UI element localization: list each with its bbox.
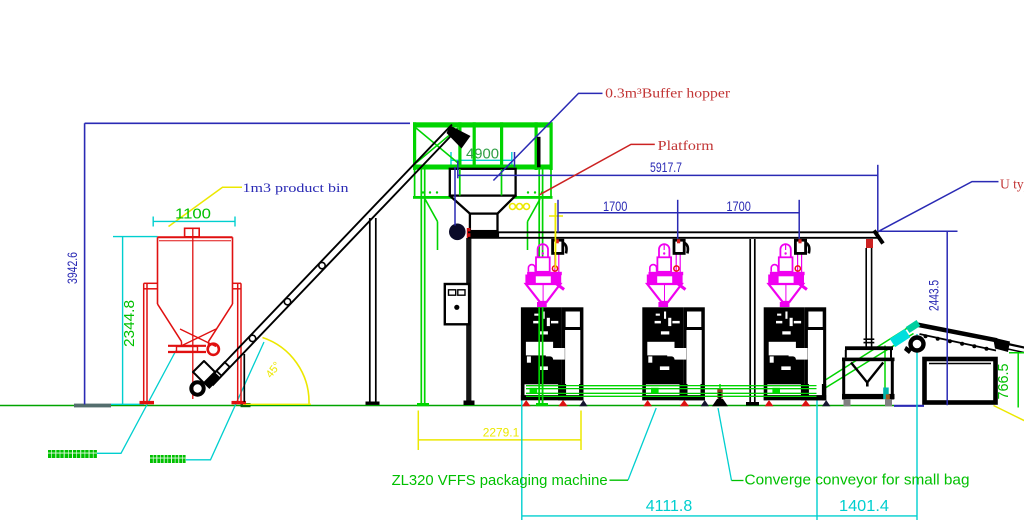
- svg-text:1401.4: 1401.4: [839, 498, 889, 515]
- svg-text:3942.6: 3942.6: [64, 252, 80, 284]
- svg-text:ZL320 VFFS packaging machine: ZL320 VFFS packaging machine: [392, 472, 608, 489]
- svg-text:766.5: 766.5: [995, 364, 1012, 400]
- svg-text:1100: 1100: [175, 206, 211, 223]
- svg-text:U type: U type: [1000, 177, 1024, 192]
- svg-text:4900: 4900: [466, 146, 499, 163]
- svg-text:Platform: Platform: [658, 138, 715, 153]
- svg-text:2344.8: 2344.8: [121, 300, 138, 347]
- svg-text:4111.8: 4111.8: [646, 498, 693, 515]
- svg-text:2443.5: 2443.5: [926, 280, 942, 311]
- svg-text:1700: 1700: [603, 198, 628, 214]
- svg-text:Converge conveyor for small ba: Converge conveyor for small bag: [745, 473, 970, 489]
- svg-text:5917.7: 5917.7: [650, 159, 682, 175]
- svg-text:0.3m³Buffer hopper: 0.3m³Buffer hopper: [605, 86, 731, 101]
- svg-text:1m3 product bin: 1m3 product bin: [243, 180, 350, 195]
- svg-text:2279.1: 2279.1: [483, 428, 520, 440]
- svg-text:1700: 1700: [726, 198, 751, 214]
